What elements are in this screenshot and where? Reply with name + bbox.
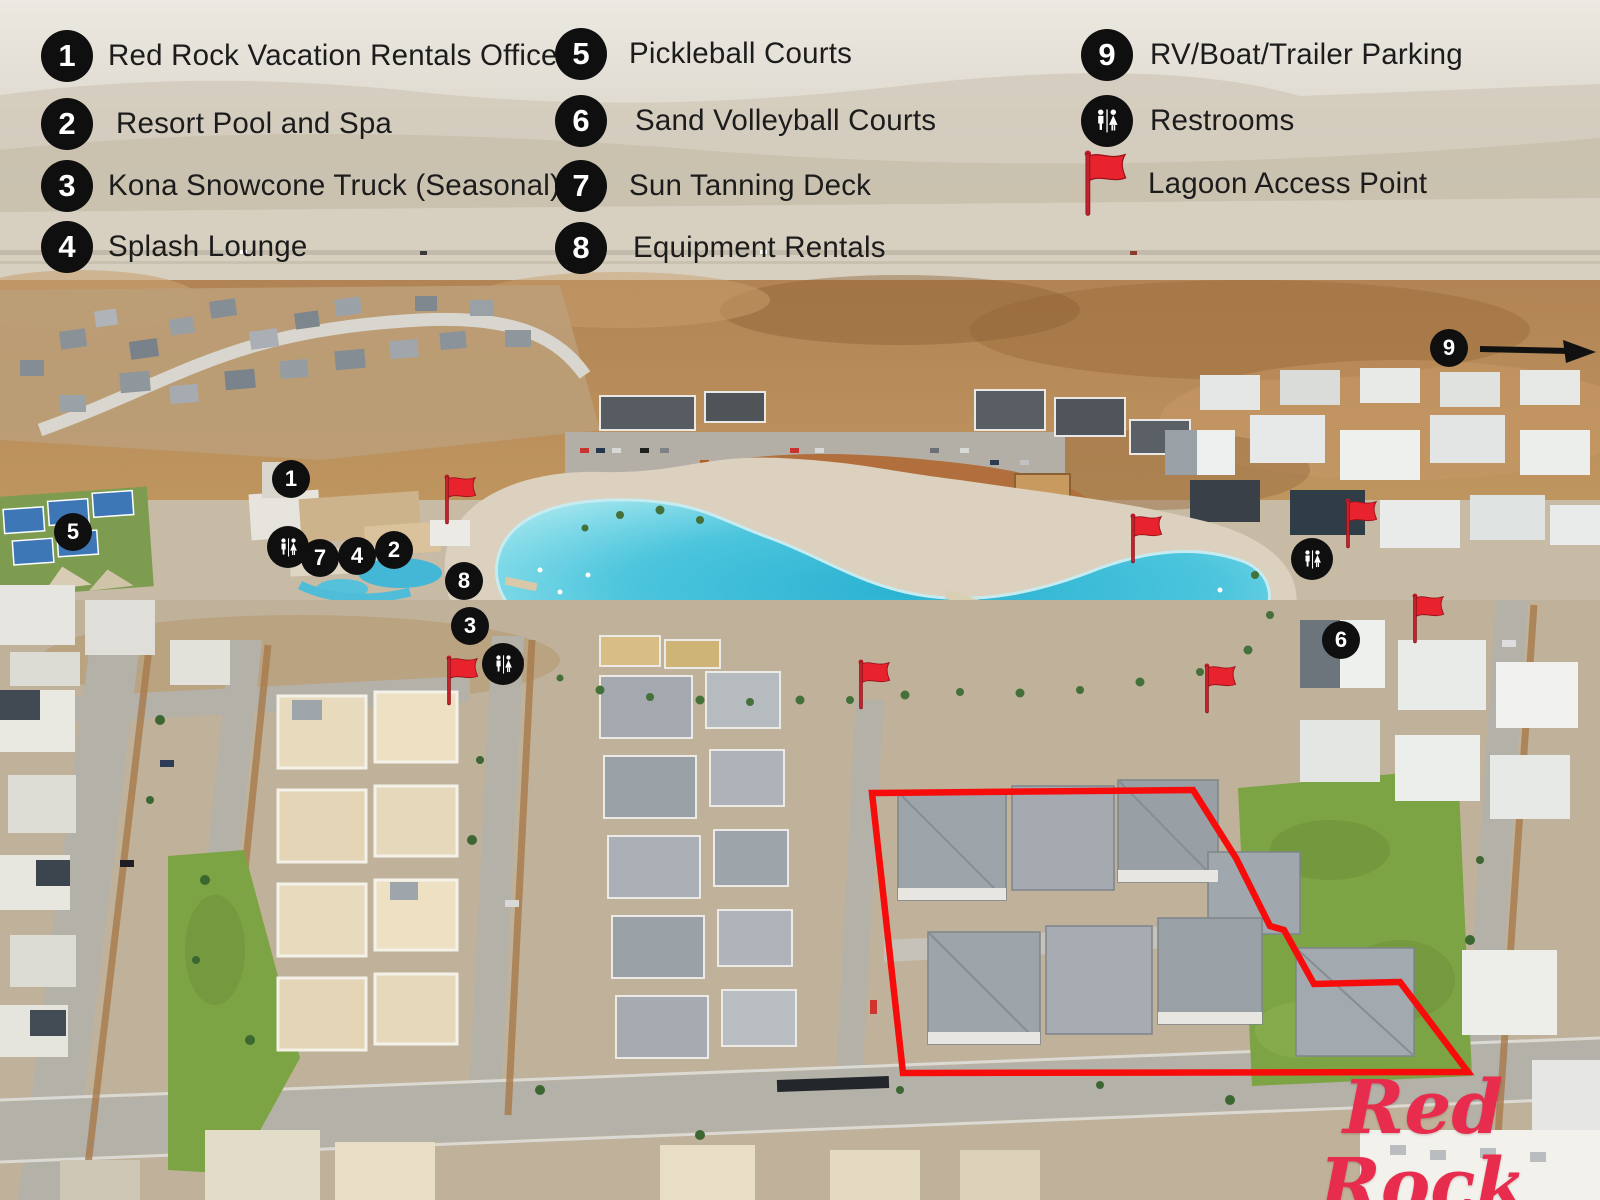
brand-logo: Red Rock VACATION RENTALS — [1246, 1070, 1600, 1200]
legend-item-pickleball: 5 Pickleball Courts — [555, 28, 852, 80]
lagoon-access-flag-icon — [1201, 662, 1239, 716]
legend-label-snowcone: Kona Snowcone Truck (Seasonal) — [108, 169, 560, 203]
legend-label-restrooms: Restrooms — [1150, 104, 1294, 138]
lagoon-access-flag-icon — [1409, 592, 1447, 646]
legend-restroom-icon — [1081, 95, 1133, 147]
legend-item-volleyball: 6 Sand Volleyball Courts — [555, 95, 936, 147]
legend-item-pool-spa: 2 Resort Pool and Spa — [41, 98, 392, 150]
legend-marker-6: 6 — [555, 95, 607, 147]
legend-label-rv-parking: RV/Boat/Trailer Parking — [1150, 38, 1463, 72]
legend-item-rv-parking: 9 RV/Boat/Trailer Parking — [1081, 29, 1463, 81]
lagoon-access-flag-icon — [855, 658, 893, 712]
legend-marker-5: 5 — [555, 28, 607, 80]
lagoon-access-flag-icon — [1127, 512, 1165, 566]
legend-label-volleyball: Sand Volleyball Courts — [635, 104, 936, 138]
brand-logo-wordmark: Red Rock — [1246, 1070, 1600, 1200]
restroom-icon — [490, 651, 517, 678]
legend-marker-1: 1 — [41, 30, 93, 82]
map-restroom-icon — [482, 643, 524, 685]
legend-marker-8: 8 — [555, 222, 607, 274]
legend-marker-9: 9 — [1081, 29, 1133, 81]
map-marker-8: 8 — [445, 562, 483, 600]
map-marker-3: 3 — [451, 607, 489, 645]
map-marker-4: 4 — [338, 537, 376, 575]
restroom-icon — [1299, 546, 1326, 573]
legend-label-tanning-deck: Sun Tanning Deck — [629, 169, 871, 203]
legend-item-snowcone: 3 Kona Snowcone Truck (Seasonal) — [41, 160, 560, 212]
legend-label-pickleball: Pickleball Courts — [629, 37, 852, 71]
map-marker-5: 5 — [54, 513, 92, 551]
flag-icon — [1342, 497, 1380, 551]
legend-item-restrooms: Restrooms — [1081, 95, 1294, 147]
flag-icon — [1127, 512, 1165, 566]
legend-marker-7: 7 — [555, 160, 607, 212]
flag-icon — [855, 658, 893, 712]
legend-item-office: 1 Red Rock Vacation Rentals Office — [41, 30, 558, 82]
map-restroom-icon — [1291, 538, 1333, 580]
map-marker-9: 9 — [1430, 329, 1468, 367]
lagoon-access-flag-icon — [441, 473, 479, 527]
lagoon-access-flag-icon — [1342, 497, 1380, 551]
legend-label-splash-lounge: Splash Lounge — [108, 230, 307, 264]
flag-icon — [1201, 662, 1239, 716]
map-restroom-icon — [267, 526, 309, 568]
legend-item-splash-lounge: 4 Splash Lounge — [41, 221, 307, 273]
legend-label-office: Red Rock Vacation Rentals Office — [108, 39, 558, 73]
map-marker-2: 2 — [375, 531, 413, 569]
resort-aerial-map: 1 Red Rock Vacation Rentals Office 2 Res… — [0, 0, 1600, 1200]
legend-label-equipment: Equipment Rentals — [633, 231, 886, 265]
neighborhood-northwest — [0, 285, 600, 460]
legend-item-tanning-deck: 7 Sun Tanning Deck — [555, 160, 871, 212]
legend-label-lagoon-access: Lagoon Access Point — [1148, 167, 1427, 201]
restroom-icon — [275, 534, 302, 561]
legend-flag-icon — [1078, 148, 1132, 220]
legend-marker-4: 4 — [41, 221, 93, 273]
map-marker-1: 1 — [272, 460, 310, 498]
legend-marker-3: 3 — [41, 160, 93, 212]
lagoon-access-flag-icon — [443, 654, 481, 708]
legend-item-equipment: 8 Equipment Rentals — [555, 222, 886, 274]
legend-item-lagoon-access: Lagoon Access Point — [1078, 148, 1427, 220]
legend-label-pool-spa: Resort Pool and Spa — [116, 107, 392, 141]
map-marker-6: 6 — [1322, 621, 1360, 659]
flag-icon — [443, 654, 481, 708]
homes-northeast — [1165, 368, 1600, 548]
legend-marker-2: 2 — [41, 98, 93, 150]
flag-icon — [1409, 592, 1447, 646]
flag-icon — [441, 473, 479, 527]
